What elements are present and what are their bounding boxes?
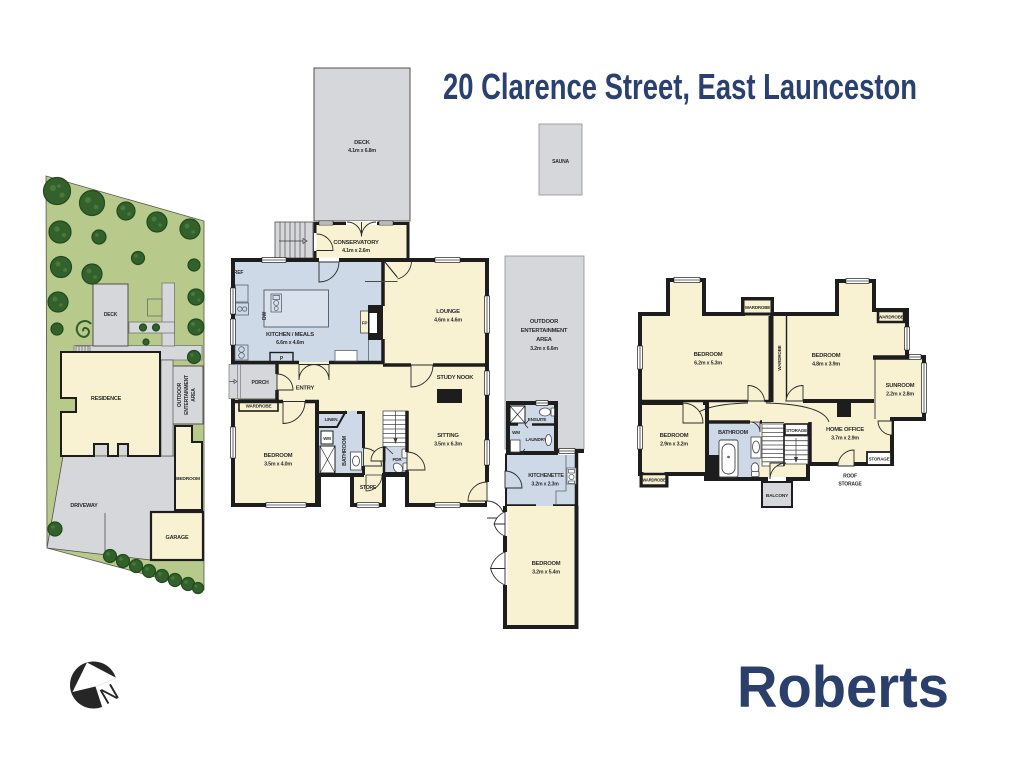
svg-text:DECK: DECK (354, 140, 371, 146)
svg-text:SITTING: SITTING (437, 433, 459, 439)
svg-text:2.2m x 2.8m: 2.2m x 2.8m (886, 392, 914, 398)
svg-text:KITCHEN / MEALS: KITCHEN / MEALS (266, 332, 314, 338)
svg-text:OUTDOOR: OUTDOOR (177, 382, 183, 407)
svg-text:BEDROOM: BEDROOM (264, 453, 293, 459)
svg-text:SUNROOM: SUNROOM (886, 383, 915, 389)
svg-text:6.6m x 4.6m: 6.6m x 4.6m (276, 340, 304, 346)
svg-text:DRIVEWAY: DRIVEWAY (70, 503, 98, 509)
svg-text:ROOF: ROOF (843, 474, 857, 480)
svg-text:BATHROOM: BATHROOM (718, 430, 748, 436)
svg-text:GARAGE: GARAGE (166, 535, 189, 541)
svg-text:4.8m x 3.9m: 4.8m x 3.9m (812, 362, 840, 368)
svg-text:RESIDENCE: RESIDENCE (91, 396, 122, 402)
svg-text:STORAGE: STORAGE (838, 482, 862, 488)
svg-text:STORAGE: STORAGE (786, 428, 807, 433)
svg-text:STUDY NOOK: STUDY NOOK (437, 375, 475, 381)
svg-text:WM: WM (323, 436, 331, 441)
svg-text:LOUNGE: LOUNGE (436, 309, 460, 315)
svg-text:WARDROBE: WARDROBE (777, 345, 782, 370)
svg-text:HOME OFFICE: HOME OFFICE (826, 427, 864, 433)
svg-text:AREA: AREA (536, 337, 553, 343)
svg-text:BALCONY: BALCONY (766, 493, 789, 499)
svg-text:WARDROBE: WARDROBE (878, 315, 903, 320)
svg-text:STORAGE: STORAGE (869, 457, 890, 462)
svg-text:CONSERVATORY: CONSERVATORY (333, 240, 379, 246)
svg-text:AREA: AREA (191, 388, 197, 402)
svg-text:STORE: STORE (360, 485, 377, 491)
svg-text:3.2m x 5.4m: 3.2m x 5.4m (532, 570, 560, 576)
svg-text:LAUNDRY: LAUNDRY (526, 437, 547, 442)
svg-text:20 Clarence Street, East Launc: 20 Clarence Street, East Launceston (443, 66, 917, 107)
svg-text:KITCHENETTE: KITCHENETTE (528, 473, 564, 479)
svg-text:3.5m x 4.0m: 3.5m x 4.0m (264, 462, 292, 468)
svg-text:ENTRY: ENTRY (296, 386, 315, 392)
svg-text:ENSUITE: ENSUITE (528, 417, 547, 422)
svg-text:3.5m x 6.3m: 3.5m x 6.3m (434, 442, 462, 448)
svg-text:DECK: DECK (104, 312, 118, 318)
svg-text:FP: FP (362, 321, 368, 326)
svg-text:Roberts: Roberts (737, 655, 949, 720)
svg-text:OUTDOOR: OUTDOOR (530, 319, 559, 325)
svg-text:BEDROOM: BEDROOM (176, 476, 200, 482)
svg-text:3.2m x 2.3m: 3.2m x 2.3m (531, 482, 559, 488)
svg-text:6.2m x 5.3m: 6.2m x 5.3m (694, 361, 722, 367)
svg-text:4.6m x 4.6m: 4.6m x 4.6m (434, 318, 462, 324)
svg-text:DW: DW (262, 312, 268, 320)
svg-text:4.1m x 2.6m: 4.1m x 2.6m (342, 248, 370, 254)
svg-text:BEDROOM: BEDROOM (812, 353, 841, 359)
svg-text:3.2m x 6.6m: 3.2m x 6.6m (530, 346, 558, 352)
svg-text:LINEN: LINEN (325, 417, 339, 422)
svg-text:ENTERTAINMENT: ENTERTAINMENT (184, 375, 190, 415)
svg-text:PDR: PDR (392, 457, 402, 462)
svg-text:WM: WM (512, 430, 520, 435)
svg-text:ENTERTAINMENT: ENTERTAINMENT (521, 328, 568, 334)
svg-text:PORCH: PORCH (251, 380, 269, 386)
svg-text:2.9m x 3.2m: 2.9m x 3.2m (660, 442, 688, 448)
svg-text:BEDROOM: BEDROOM (532, 561, 561, 567)
svg-text:BEDROOM: BEDROOM (694, 352, 723, 358)
svg-text:WARDROBE: WARDROBE (246, 404, 272, 409)
svg-text:REF: REF (234, 270, 244, 276)
svg-text:BATHROOM: BATHROOM (342, 435, 348, 465)
svg-text:WARDROBE: WARDROBE (745, 305, 770, 310)
svg-text:BEDROOM: BEDROOM (660, 433, 689, 439)
svg-text:SAUNA: SAUNA (552, 159, 569, 165)
svg-text:WARDROBE: WARDROBE (642, 478, 666, 483)
svg-text:4.1m x 6.8m: 4.1m x 6.8m (348, 148, 376, 154)
svg-text:3.7m x 2.9m: 3.7m x 2.9m (831, 436, 859, 442)
